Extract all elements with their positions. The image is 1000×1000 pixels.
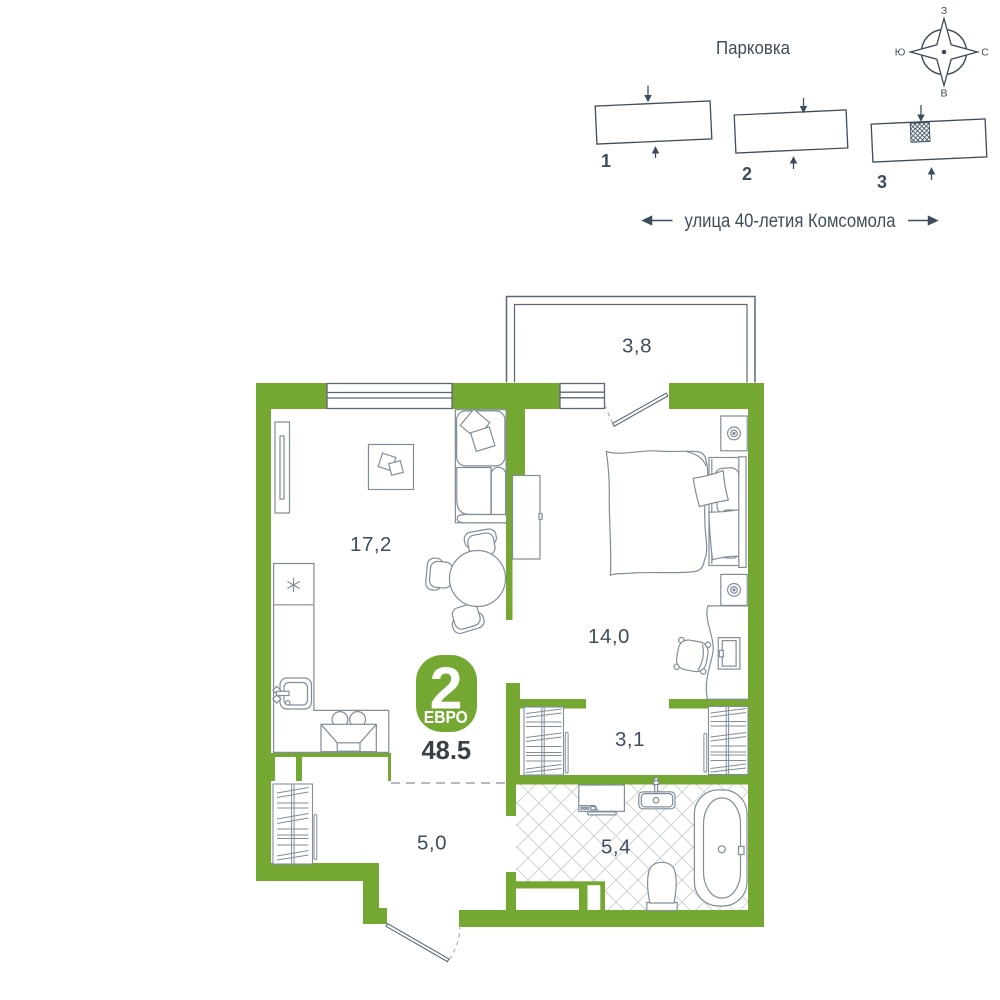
svg-text:улица 40-летия Комсомола: улица 40-летия Комсомола [685,211,896,232]
svg-text:48.5: 48.5 [421,737,471,765]
svg-text:1: 1 [601,151,611,171]
svg-text:14,0: 14,0 [588,625,630,648]
svg-text:Ю: Ю [895,47,906,59]
svg-text:2: 2 [742,164,752,184]
svg-text:3,8: 3,8 [622,335,652,358]
svg-text:5,4: 5,4 [601,836,631,859]
svg-text:ЕВРО: ЕВРО [424,707,468,727]
svg-text:С: С [981,47,989,59]
svg-text:3,1: 3,1 [615,728,645,751]
svg-text:17,2: 17,2 [350,533,392,556]
svg-text:5,0: 5,0 [417,832,447,855]
svg-text:В: В [940,88,947,100]
svg-text:3: 3 [877,172,887,192]
svg-text:Парковка: Парковка [716,37,791,58]
svg-text:З: З [941,5,947,17]
